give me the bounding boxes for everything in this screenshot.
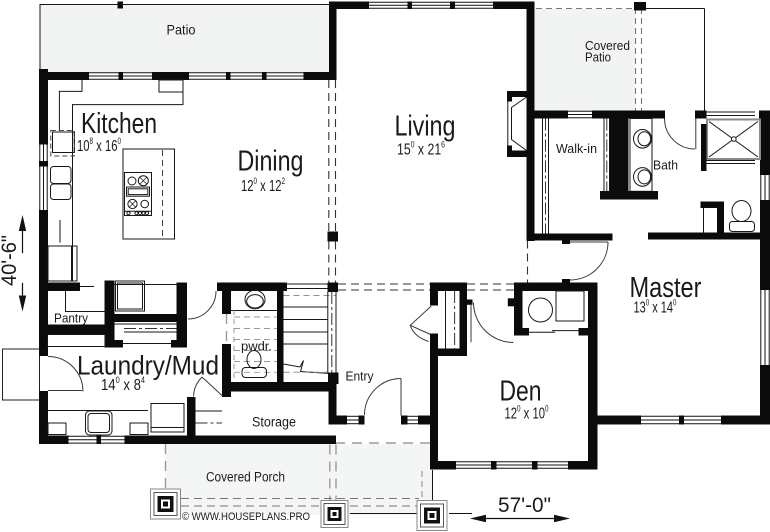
svg-text:130 x 140: 130 x 140 xyxy=(634,298,677,317)
svg-text:120 x 122: 120 x 122 xyxy=(241,176,285,195)
svg-text:Patio: Patio xyxy=(167,22,196,38)
svg-text:140 x 84: 140 x 84 xyxy=(101,375,145,394)
svg-text:Entry: Entry xyxy=(346,370,375,384)
svg-text:40'-6": 40'-6" xyxy=(0,235,21,286)
svg-text:© WWW.HOUSEPLANS.PRO: © WWW.HOUSEPLANS.PRO xyxy=(182,511,310,523)
svg-text:Living: Living xyxy=(395,111,456,143)
svg-text:Patio: Patio xyxy=(585,51,611,65)
svg-text:108 x 160: 108 x 160 xyxy=(77,136,121,155)
svg-text:Storage: Storage xyxy=(252,415,296,430)
svg-text:Dining: Dining xyxy=(238,146,304,178)
svg-text:Walk-in: Walk-in xyxy=(556,142,597,156)
svg-text:Bath: Bath xyxy=(653,159,678,173)
svg-text:Laundry/Mud: Laundry/Mud xyxy=(77,351,219,381)
svg-text:Pantry: Pantry xyxy=(54,311,88,326)
svg-text:120 x 100: 120 x 100 xyxy=(505,404,549,423)
svg-text:150 x 216: 150 x 216 xyxy=(397,140,445,159)
svg-text:Covered Porch: Covered Porch xyxy=(206,470,285,485)
svg-text:57'-0": 57'-0" xyxy=(498,494,551,517)
